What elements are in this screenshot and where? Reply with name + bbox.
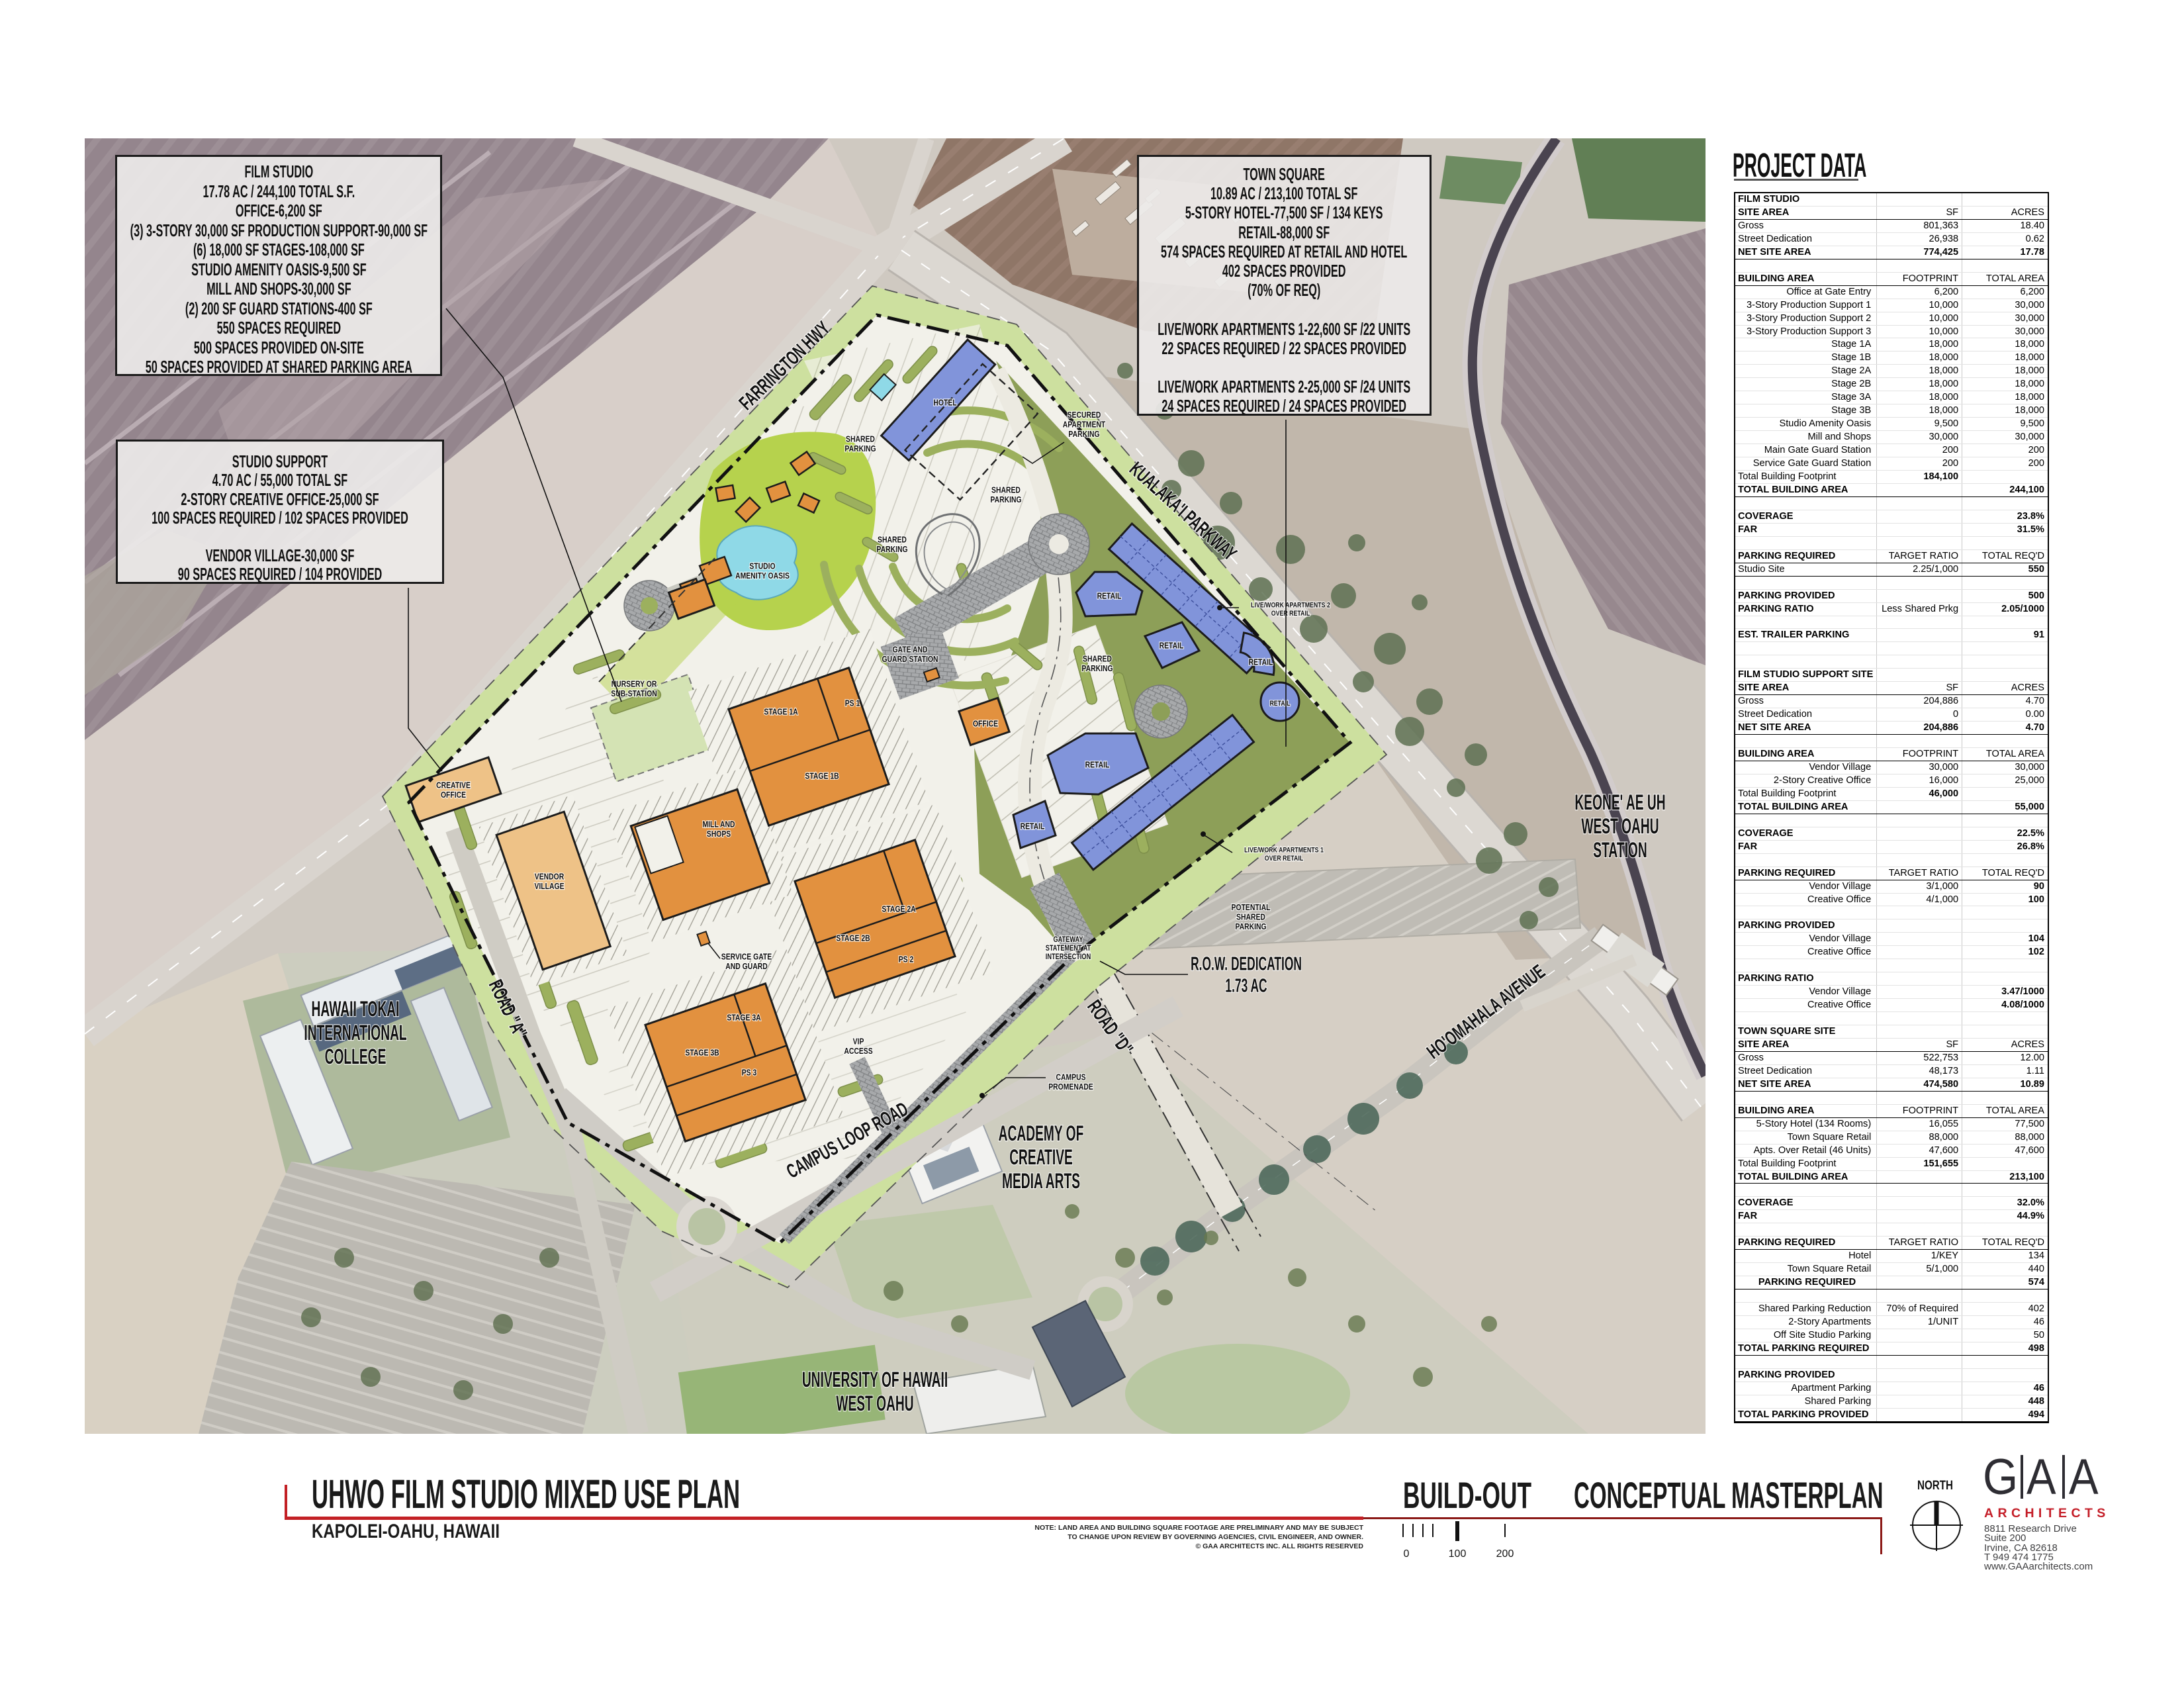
- svg-text:MEDIA ARTS: MEDIA ARTS: [1002, 1169, 1080, 1193]
- svg-text:SHARED: SHARED: [846, 434, 875, 444]
- svg-text:RETAIL: RETAIL: [1160, 641, 1184, 650]
- svg-text:STAGE 2B: STAGE 2B: [836, 933, 870, 943]
- svg-text:STAGE 3B: STAGE 3B: [685, 1048, 719, 1057]
- svg-text:RETAIL: RETAIL: [1021, 821, 1045, 831]
- svg-text:OVER RETAIL: OVER RETAIL: [1265, 855, 1303, 863]
- svg-text:SECURED: SECURED: [1068, 410, 1101, 420]
- svg-text:PARKING: PARKING: [990, 495, 1021, 504]
- svg-text:CREATIVE: CREATIVE: [1009, 1145, 1073, 1169]
- svg-text:HAWAII TOKAI: HAWAII TOKAI: [312, 997, 400, 1021]
- svg-text:1.73 AC: 1.73 AC: [1225, 975, 1267, 997]
- svg-text:SHARED: SHARED: [1083, 654, 1112, 663]
- svg-text:POTENTIAL: POTENTIAL: [1232, 903, 1271, 912]
- svg-text:OFFICE: OFFICE: [973, 719, 998, 728]
- svg-text:SHARED: SHARED: [1236, 913, 1265, 922]
- svg-text:HOTEL: HOTEL: [933, 398, 956, 407]
- svg-text:GUARD STATION: GUARD STATION: [882, 655, 938, 664]
- svg-text:INTERSECTION: INTERSECTION: [1046, 953, 1091, 961]
- svg-text:MILL AND: MILL AND: [702, 820, 735, 829]
- svg-text:CREATIVE: CREATIVE: [436, 780, 471, 790]
- svg-text:RETAIL: RETAIL: [1085, 760, 1110, 769]
- svg-text:GATEWAY: GATEWAY: [1054, 936, 1083, 944]
- svg-text:GATE AND: GATE AND: [892, 645, 927, 654]
- svg-text:AMENITY OASIS: AMENITY OASIS: [735, 571, 790, 581]
- svg-text:VENDOR: VENDOR: [535, 872, 565, 881]
- svg-text:STAGE 1B: STAGE 1B: [805, 771, 839, 780]
- svg-text:STUDIO: STUDIO: [749, 561, 775, 571]
- svg-text:KEONE' AE UH: KEONE' AE UH: [1574, 790, 1665, 814]
- svg-text:PS 3: PS 3: [742, 1068, 757, 1077]
- svg-text:OFFICE: OFFICE: [441, 790, 466, 800]
- svg-text:VIP: VIP: [853, 1037, 864, 1046]
- svg-text:LIVE/WORK APARTMENTS 2: LIVE/WORK APARTMENTS 2: [1251, 602, 1330, 610]
- svg-text:STAGE 2A: STAGE 2A: [882, 904, 916, 914]
- svg-text:STATEMENT AT: STATEMENT AT: [1046, 945, 1091, 953]
- svg-text:LIVE/WORK APARTMENTS 1: LIVE/WORK APARTMENTS 1: [1244, 847, 1324, 855]
- svg-text:SHOPS: SHOPS: [707, 829, 731, 839]
- svg-text:PARKING: PARKING: [1235, 922, 1266, 931]
- svg-text:ACADEMY OF: ACADEMY OF: [999, 1121, 1084, 1145]
- svg-text:NURSERY OR: NURSERY OR: [612, 679, 657, 688]
- svg-text:INTERNATIONAL: INTERNATIONAL: [304, 1021, 406, 1045]
- svg-text:SHARED: SHARED: [878, 535, 907, 544]
- svg-text:PARKING: PARKING: [1068, 430, 1099, 439]
- svg-text:STATION: STATION: [1593, 838, 1647, 862]
- svg-text:CAMPUS: CAMPUS: [1056, 1072, 1085, 1082]
- svg-text:RETAIL: RETAIL: [1097, 591, 1122, 600]
- svg-text:COLLEGE: COLLEGE: [325, 1045, 387, 1068]
- svg-text:PROMENADE: PROMENADE: [1048, 1082, 1093, 1092]
- svg-text:STAGE 3A: STAGE 3A: [727, 1013, 761, 1022]
- svg-text:100: 100: [1449, 1548, 1467, 1560]
- svg-text:R.O.W. DEDICATION: R.O.W. DEDICATION: [1191, 953, 1302, 975]
- svg-text:APARTMENT: APARTMENT: [1063, 420, 1106, 430]
- svg-text:UNIVERSITY OF HAWAII: UNIVERSITY OF HAWAII: [802, 1368, 948, 1391]
- svg-text:VILLAGE: VILLAGE: [534, 882, 564, 891]
- svg-text:WEST OAHU: WEST OAHU: [1581, 814, 1659, 838]
- svg-text:PARKING: PARKING: [876, 545, 907, 554]
- svg-text:AND GUARD: AND GUARD: [725, 962, 768, 971]
- svg-text:STAGE 1A: STAGE 1A: [764, 707, 798, 716]
- svg-text:WEST OAHU: WEST OAHU: [836, 1391, 913, 1415]
- svg-text:PARKING: PARKING: [844, 444, 876, 453]
- svg-text:200: 200: [1496, 1548, 1514, 1560]
- svg-text:ACCESS: ACCESS: [844, 1047, 872, 1056]
- svg-text:RETAIL: RETAIL: [1249, 657, 1273, 667]
- svg-text:SHARED: SHARED: [991, 485, 1021, 494]
- svg-text:PS 1: PS 1: [845, 698, 860, 708]
- svg-text:PARKING: PARKING: [1081, 664, 1113, 673]
- svg-text:0: 0: [1404, 1548, 1410, 1560]
- svg-text:SUB-STATION: SUB-STATION: [611, 689, 657, 698]
- svg-text:SERVICE GATE: SERVICE GATE: [721, 952, 772, 961]
- svg-text:OVER RETAIL: OVER RETAIL: [1271, 610, 1310, 618]
- svg-text:PS 2: PS 2: [899, 955, 914, 964]
- svg-text:RETAIL: RETAIL: [1269, 700, 1290, 708]
